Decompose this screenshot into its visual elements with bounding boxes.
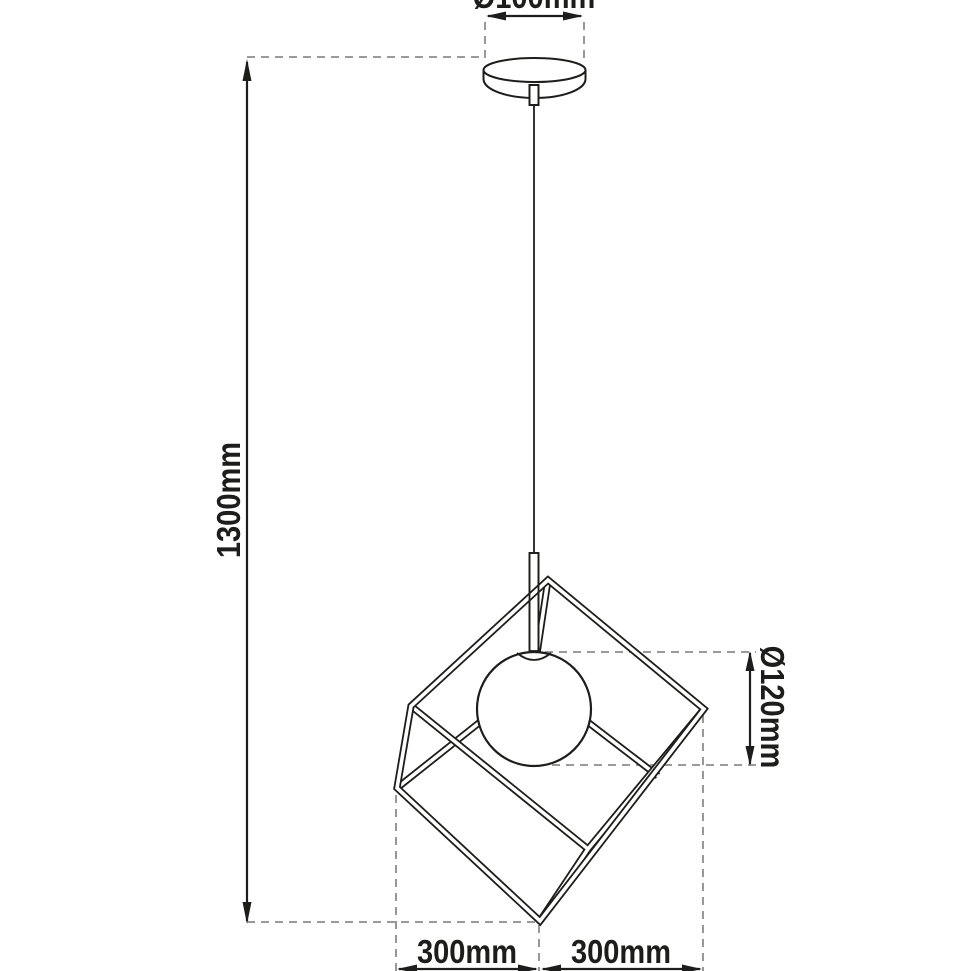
dimension-cage-width: 300mm 300mm [397,933,702,971]
globe-sphere [477,652,591,766]
ceiling-canopy [484,58,586,105]
arrowhead-up [746,651,755,671]
label-globe-diameter: Ø120mm [754,646,791,769]
arrowhead-down [746,746,755,766]
arrowhead-up [243,59,252,81]
label-cage-width-right: 300mm [571,933,671,970]
dimension-globe-diameter: Ø120mm [746,646,791,769]
label-cage-width-left: 300mm [417,933,517,970]
drawing-canvas: 1300mm Ø100mm Ø120mm 300mm 300mm [0,0,970,971]
arrowhead-down [243,902,252,924]
projection-dashed-lines [247,22,756,971]
stem-rod [530,553,539,651]
label-suspension-height: 1300mm [210,442,247,558]
dimension-canopy-diameter: Ø100mm [473,0,596,21]
dimension-drawing: 1300mm Ø100mm Ø120mm 300mm 300mm [0,0,970,971]
canopy-cord-grip [530,85,539,105]
label-canopy-diameter: Ø100mm [473,0,596,15]
dimension-suspension-height: 1300mm [210,59,251,924]
